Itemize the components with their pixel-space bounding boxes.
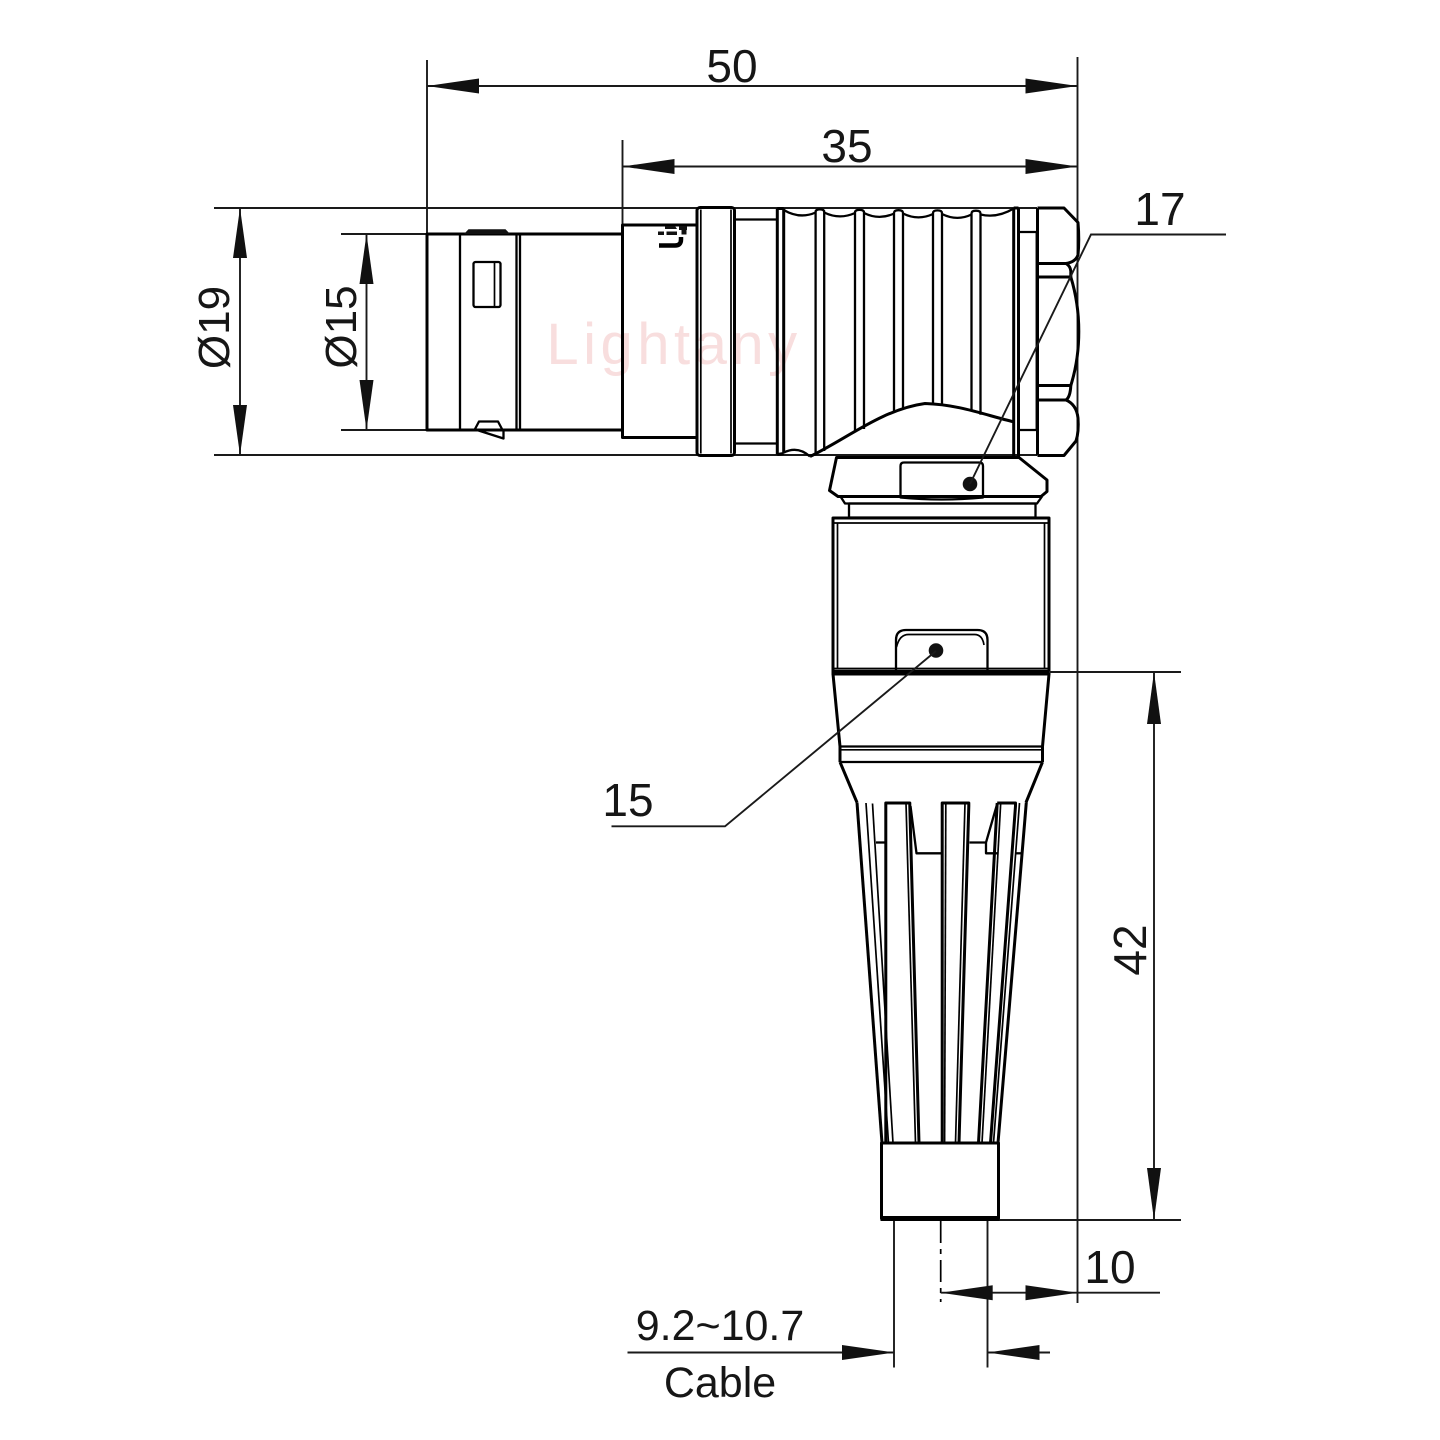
svg-text:15: 15 bbox=[602, 774, 653, 826]
svg-text:9.2~10.7: 9.2~10.7 bbox=[636, 1302, 805, 1350]
svg-text:50: 50 bbox=[706, 40, 757, 92]
svg-text:Ø19: Ø19 bbox=[190, 286, 239, 369]
svg-text:17: 17 bbox=[1134, 183, 1185, 235]
svg-text:Cable: Cable bbox=[664, 1359, 776, 1407]
svg-text:10: 10 bbox=[1084, 1241, 1135, 1293]
svg-text:Ø15: Ø15 bbox=[317, 285, 366, 368]
svg-text:35: 35 bbox=[821, 120, 872, 172]
svg-text:42: 42 bbox=[1104, 924, 1156, 975]
svg-text:Lightany: Lightany bbox=[546, 312, 801, 377]
